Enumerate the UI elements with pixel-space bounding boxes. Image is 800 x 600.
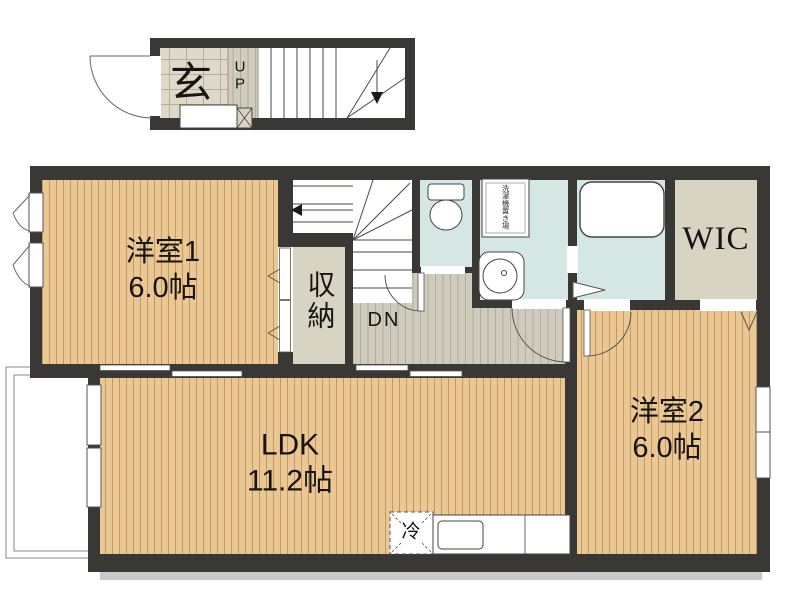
hall-ldk-sliding-door — [356, 365, 408, 371]
stairs-up-label: UP — [233, 60, 248, 93]
room2-size: 6.0帖 — [632, 433, 701, 465]
room1-window — [29, 193, 43, 232]
closet-door-panel — [280, 301, 291, 353]
entrance-doorway — [147, 56, 161, 116]
room1-sliding-door — [172, 371, 242, 377]
room1-name: 洋室1 — [126, 237, 200, 269]
balcony — [6, 367, 90, 558]
toilet-door-leaf — [418, 273, 424, 311]
room2-doorway — [584, 299, 630, 311]
closet-door-panel — [280, 248, 291, 300]
toilet-bowl — [430, 200, 462, 230]
room1-window-swing — [13, 245, 30, 286]
ldk-window — [87, 385, 101, 445]
toilet-tank — [428, 184, 464, 200]
room2-name: 洋室2 — [630, 397, 704, 429]
entrance-door-arc — [90, 56, 152, 118]
room1-sliding-door — [100, 365, 170, 371]
building-shadow — [100, 572, 762, 580]
kitchen-sink — [438, 521, 483, 549]
floorplan: 玄 UP 洋室1 6.0帖 収納 DN LDK 11.2帖 洋室2 6.0帖 W… — [0, 0, 800, 600]
bathtub — [580, 182, 664, 237]
room1-window-swing — [13, 195, 30, 231]
up-stairs-floor — [258, 48, 405, 118]
stair-lower-floor — [353, 180, 412, 303]
entrance-label: 玄 — [170, 61, 212, 107]
ldk-name: LDK — [261, 429, 319, 462]
ldk-window — [87, 448, 101, 507]
wic-opening — [700, 299, 756, 311]
refrigerator-label: 冷 — [401, 523, 420, 544]
washroom-door-leaf — [563, 308, 570, 362]
laundry-label: 洗濯機置き場 — [501, 185, 509, 230]
floorplan-drawing — [0, 0, 800, 600]
room1-window — [29, 243, 43, 287]
storage-label: 収納 — [304, 270, 335, 332]
washroom-doorway — [512, 299, 566, 309]
entrance-step — [180, 105, 237, 128]
bath-doorway — [567, 246, 578, 273]
ldk-size: 11.2帖 — [247, 465, 333, 498]
room2-door-leaf — [584, 310, 590, 356]
stairs-down-label: DN — [368, 309, 401, 331]
toilet-doorway — [421, 266, 465, 274]
hall-ldk-sliding-door — [410, 371, 462, 377]
wic-label: WIC — [682, 221, 749, 257]
room1-size: 6.0帖 — [128, 273, 197, 305]
